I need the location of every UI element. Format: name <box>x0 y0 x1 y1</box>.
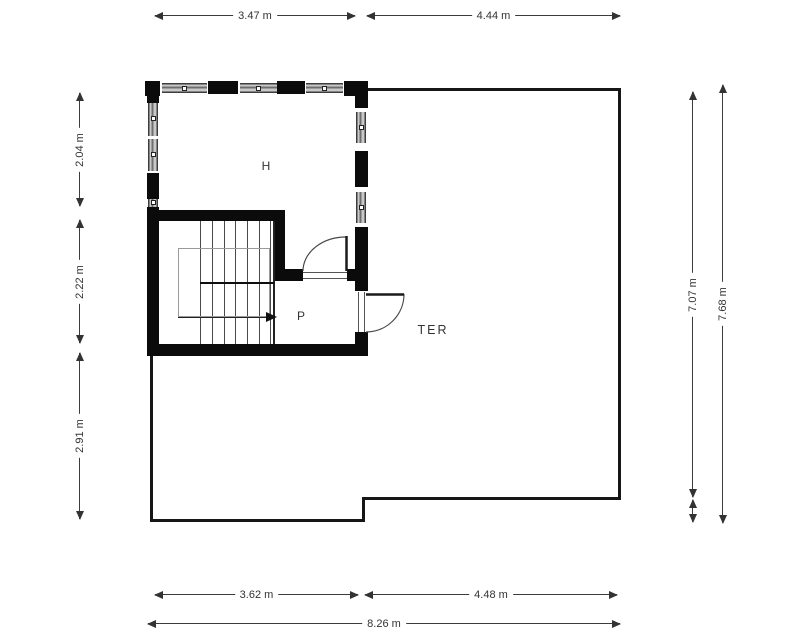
floor-plan: 3.47 m 4.44 m 2.04 m 2.22 m 2.91 m 7.07 … <box>0 0 800 640</box>
door-arc-hall <box>303 237 346 271</box>
room-label-ter: TER <box>418 323 449 337</box>
door-arc-terrace <box>366 294 404 332</box>
room-label-h: H <box>262 159 271 173</box>
door-symbols <box>0 0 800 640</box>
room-label-p: P <box>297 309 305 323</box>
